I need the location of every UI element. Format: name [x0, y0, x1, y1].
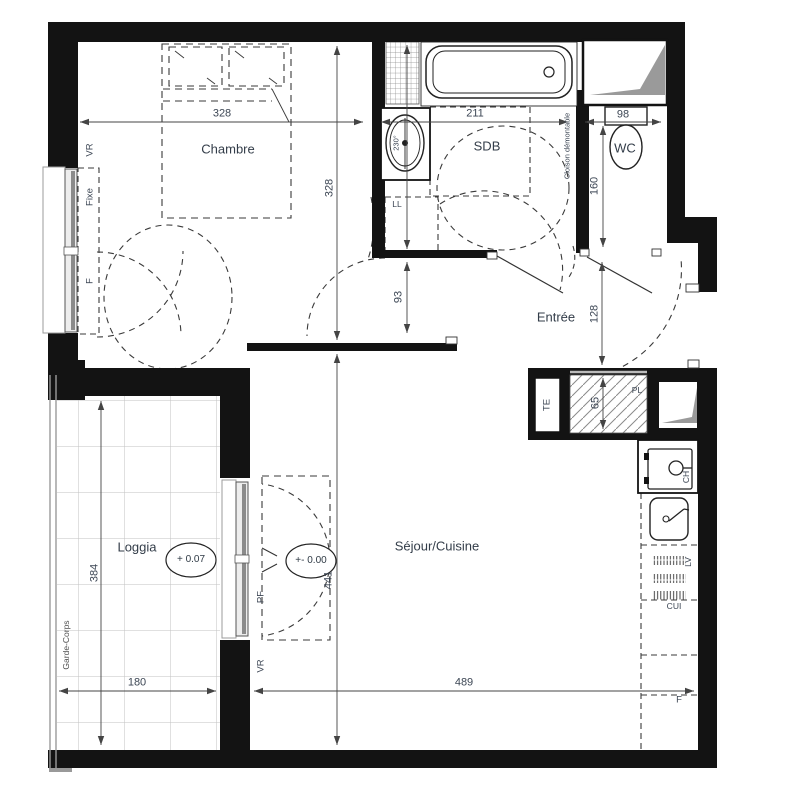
pl-closet-hatch — [570, 375, 647, 433]
level-sejour: +- 0.00 — [295, 556, 326, 566]
dim-pl-h: 65 — [591, 397, 602, 409]
turning-circle-chambre — [104, 225, 232, 369]
window-arc-1 — [97, 252, 181, 336]
door-jamb — [652, 249, 661, 256]
floor-plan: Chambre SDB WC Entrée Loggia Séjour/Cuis… — [0, 0, 802, 800]
ann-basin-230: 230° — [392, 135, 400, 151]
doors — [446, 249, 699, 368]
sdb-door-arc2 — [569, 246, 575, 277]
floor-plan-drawing — [0, 0, 802, 800]
ann-cui: CUI — [667, 602, 682, 611]
dim-chambre-w: 328 — [213, 109, 231, 120]
water-heater — [638, 440, 698, 493]
entrance-door-arc — [613, 259, 681, 371]
ann-vr-sejour: VR — [256, 659, 266, 672]
room-label-sdb: SDB — [474, 140, 501, 153]
ann-pf: PF — [256, 591, 266, 603]
dim-wc-w: 98 — [617, 110, 629, 121]
dim-loggia-w: 180 — [128, 678, 146, 689]
ann-te: TE — [542, 399, 552, 411]
room-label-entree: Entrée — [537, 311, 575, 324]
room-label-chambre: Chambre — [201, 143, 254, 156]
wc-duct — [583, 40, 667, 105]
dim-sejour-h: 441 — [324, 571, 335, 589]
wall-end-plate — [446, 337, 457, 344]
ann-vr-chambre: VR — [85, 143, 95, 156]
washbasin — [381, 108, 430, 180]
sdb-door-arc — [440, 191, 563, 290]
room-label-sejour: Séjour/Cuisine — [395, 540, 480, 553]
dim-entree-h: 128 — [590, 305, 601, 323]
room-label-loggia: Loggia — [117, 541, 156, 554]
ann-ch: CH — [682, 471, 691, 483]
ann-lv: LV — [684, 557, 693, 567]
ann-fixe: Fixe — [85, 188, 95, 206]
sdb-tiled-area — [386, 42, 419, 104]
dim-chambre-h: 328 — [325, 179, 336, 197]
ann-fridge: F — [676, 695, 682, 705]
dim-sejour-w: 489 — [455, 678, 473, 689]
ann-ll: LL — [392, 200, 401, 209]
dishwasher — [652, 556, 686, 600]
garde-corps-railing — [50, 375, 56, 768]
ann-pl: PL — [632, 386, 642, 395]
dim-sdb-w: 211 — [466, 109, 484, 120]
railing-end — [49, 768, 72, 772]
entry-storage — [535, 372, 698, 433]
room-label-wc: WC — [614, 142, 636, 155]
ann-cloison-demontable: Cloison démontable — [563, 113, 571, 179]
entrance-door-jamb — [686, 284, 699, 292]
kitchen-sink — [650, 498, 689, 540]
wc-door-leaf — [587, 257, 652, 293]
dim-wc-h: 160 — [590, 177, 601, 195]
door-jamb — [487, 252, 497, 259]
ann-garde-corps: Garde-Corps — [62, 620, 71, 669]
sdb-door-leaf — [497, 256, 563, 293]
dim-door-h: 93 — [394, 291, 405, 303]
bathtub — [421, 42, 577, 106]
dim-loggia-h: 384 — [90, 564, 101, 582]
bed — [162, 44, 291, 218]
level-loggia: + 0.07 — [177, 555, 205, 565]
door-jamb — [580, 249, 589, 256]
entrance-door-jamb — [688, 360, 699, 368]
ann-f-window: F — [85, 278, 95, 284]
turning-circle-sdb — [437, 126, 569, 250]
chambre-door-arc — [307, 258, 385, 336]
pf-window — [222, 480, 277, 638]
chambre-window — [43, 167, 78, 333]
